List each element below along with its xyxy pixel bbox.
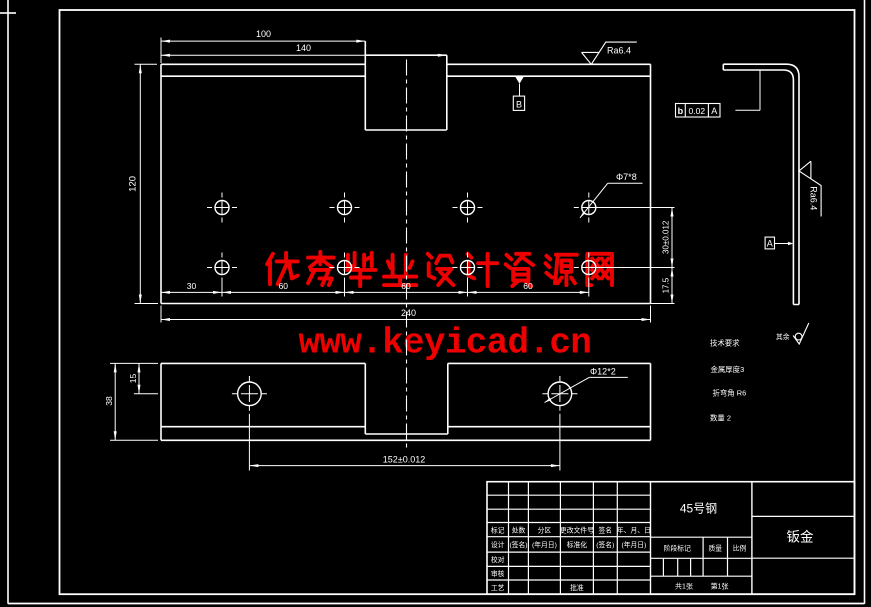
svg-text:金属厚度3: 金属厚度3 [711, 365, 745, 374]
svg-text:标准化: 标准化 [567, 540, 588, 549]
svg-text:质量: 质量 [709, 543, 723, 552]
svg-text:审核: 审核 [491, 569, 505, 578]
svg-text:38: 38 [104, 396, 114, 406]
svg-text:152±0.012: 152±0.012 [383, 455, 425, 465]
svg-text:钣金: 钣金 [787, 530, 815, 545]
svg-text:60: 60 [401, 281, 411, 291]
svg-text:120: 120 [128, 176, 139, 192]
svg-text:B: B [516, 99, 522, 109]
svg-text:(年月日): (年月日) [532, 540, 557, 549]
svg-text:工艺: 工艺 [491, 584, 505, 592]
svg-text:A: A [711, 106, 717, 116]
svg-text:比例: 比例 [733, 543, 747, 552]
svg-text:140: 140 [296, 43, 311, 53]
svg-text:第1张: 第1张 [711, 581, 729, 590]
svg-text:0.02: 0.02 [689, 106, 706, 116]
svg-text:A: A [767, 239, 773, 249]
svg-text:30: 30 [187, 281, 197, 291]
svg-text:(签名): (签名) [596, 540, 614, 549]
svg-text:处数: 处数 [512, 525, 526, 534]
svg-text:60: 60 [279, 281, 289, 291]
svg-text:b: b [678, 106, 684, 116]
svg-text:Φ7*8: Φ7*8 [616, 172, 637, 182]
svg-text:Ra6.4: Ra6.4 [607, 45, 631, 55]
svg-text:数量 2: 数量 2 [710, 414, 731, 423]
svg-text:Ra6.4: Ra6.4 [808, 186, 818, 210]
svg-text:更改文件号: 更改文件号 [560, 525, 594, 534]
svg-text:100: 100 [256, 29, 271, 39]
svg-text:签名: 签名 [599, 525, 613, 534]
svg-text:240: 240 [401, 308, 416, 318]
svg-text:阶段标记: 阶段标记 [664, 543, 691, 552]
svg-text:设计: 设计 [491, 540, 505, 549]
svg-text:批准: 批准 [570, 583, 584, 592]
svg-text:校对: 校对 [491, 555, 505, 564]
svg-text:技术要求: 技术要求 [710, 338, 740, 347]
svg-text:www.keyicad.cn: www.keyicad.cn [299, 323, 592, 364]
svg-text:45号钢: 45号钢 [680, 502, 717, 516]
svg-text:15: 15 [128, 374, 138, 384]
svg-text:年、月、日: 年、月、日 [617, 525, 651, 534]
svg-text:(年月日): (年月日) [621, 540, 646, 549]
svg-text:(签名): (签名) [509, 540, 527, 549]
svg-text:17.5: 17.5 [662, 277, 671, 293]
svg-text:折弯角 R6: 折弯角 R6 [713, 389, 747, 398]
svg-text:标记: 标记 [491, 525, 505, 534]
svg-text:60: 60 [523, 281, 533, 291]
svg-text:其余: 其余 [776, 332, 790, 341]
svg-text:Φ12*2: Φ12*2 [590, 366, 616, 376]
svg-text:30±0.012: 30±0.012 [662, 220, 671, 254]
svg-text:共1张: 共1张 [675, 581, 693, 590]
svg-text:分区: 分区 [538, 525, 552, 534]
